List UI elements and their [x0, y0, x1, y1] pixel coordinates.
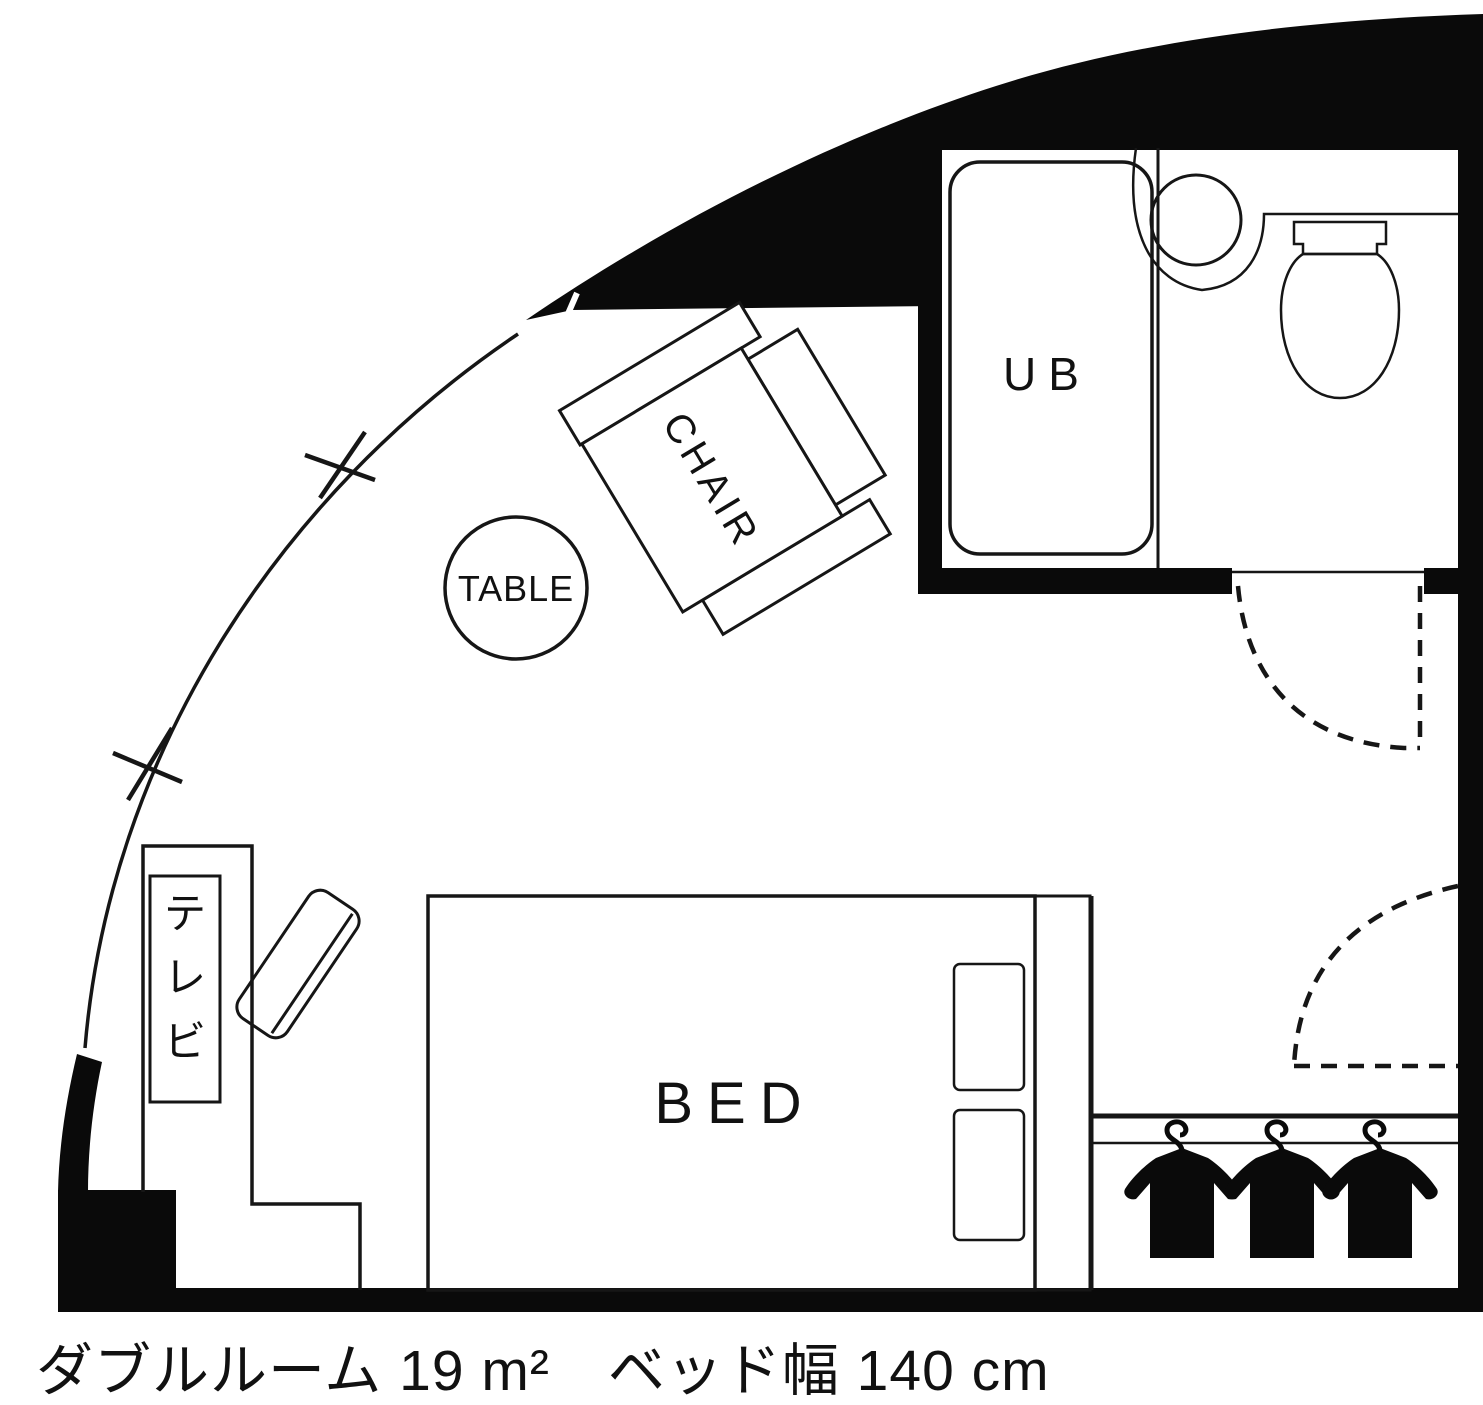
- table-label: TABLE: [458, 568, 574, 609]
- floorplan-canvas: UB CHAIR TABLE テ レ ビ BED: [0, 0, 1483, 1405]
- bathroom-left-wall: [918, 146, 942, 594]
- exterior-curved-wall: [526, 14, 1483, 320]
- sink-counter: [1133, 148, 1458, 290]
- toilet-icon: [1281, 222, 1399, 398]
- pillow: [954, 1110, 1024, 1240]
- lower-left-curved-wall: [58, 1054, 102, 1192]
- bathroom-wall-stub: [1424, 568, 1460, 594]
- table: TABLE: [445, 517, 587, 659]
- floorplan-page: UB CHAIR TABLE テ レ ビ BED: [0, 0, 1483, 1405]
- bed: BED: [428, 896, 1090, 1290]
- bed-label: BED: [654, 1071, 815, 1136]
- closet: [1092, 896, 1458, 1290]
- bathroom-unit: UB: [918, 146, 1460, 748]
- caption: ダブルルーム 19 m² ベッド幅 140 cm: [36, 1339, 1050, 1403]
- bathroom-label: UB: [1003, 348, 1091, 400]
- chair: CHAIR: [559, 284, 912, 647]
- tv-label-char: ビ: [164, 1018, 206, 1065]
- tv-label-char: レ: [164, 954, 206, 1001]
- bathroom-bottom-wall: [918, 568, 1232, 594]
- tv-label-char: テ: [164, 890, 206, 937]
- entry-door-swing: [1294, 886, 1458, 1066]
- entry-door: [1294, 886, 1458, 1066]
- headboard: [1035, 896, 1090, 1290]
- right-wall: [1458, 110, 1483, 1312]
- pillow: [954, 964, 1024, 1090]
- bathroom-door-swing: [1238, 586, 1420, 748]
- sink-icon: [1151, 175, 1241, 265]
- tv-stand: テ レ ビ: [143, 846, 365, 1290]
